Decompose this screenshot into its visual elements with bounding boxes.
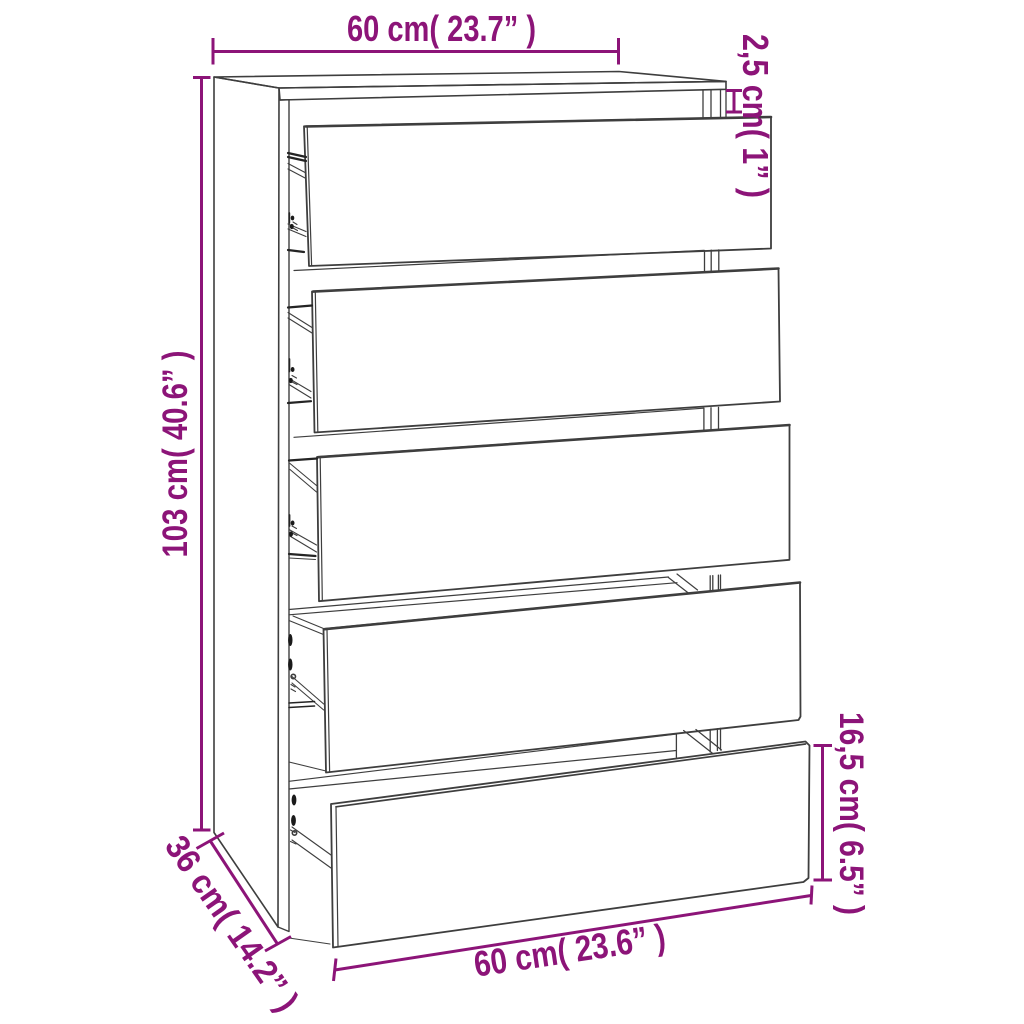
svg-text:16,5 cm( 6.5” ): 16,5 cm( 6.5” ) — [832, 712, 870, 915]
svg-text:103 cm( 40.6” ): 103 cm( 40.6” ) — [156, 351, 195, 558]
svg-text:60 cm( 23.7” ): 60 cm( 23.7” ) — [347, 8, 536, 49]
svg-text:2,5 cm( 1” ): 2,5 cm( 1” ) — [735, 34, 776, 198]
